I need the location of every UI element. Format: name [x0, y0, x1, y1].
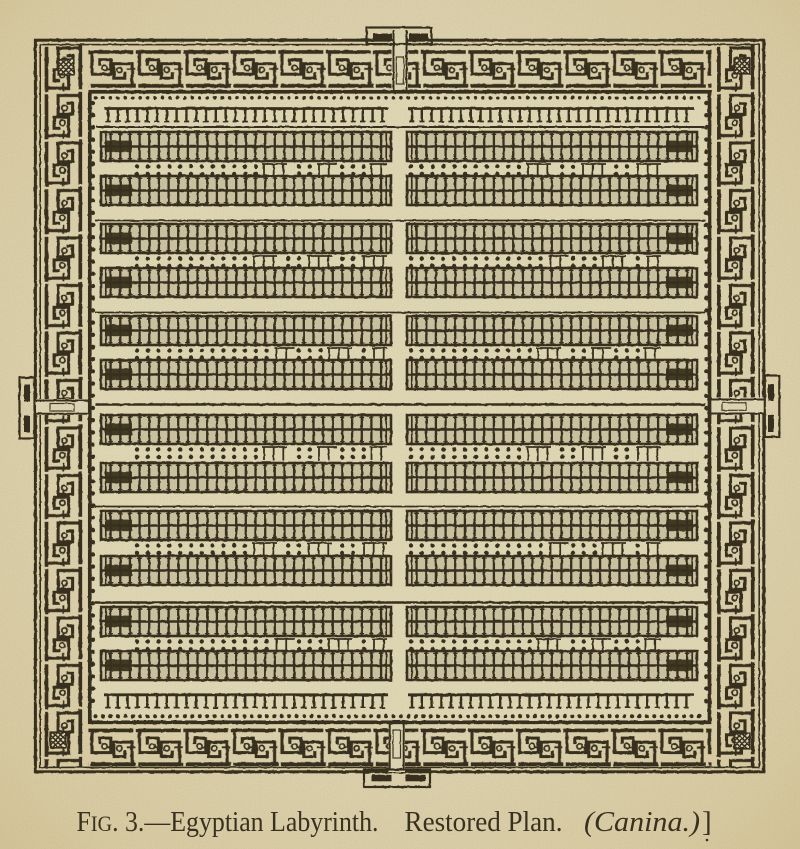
svg-text:(Canina.): (Canina.)	[584, 806, 700, 838]
svg-text:]: ]	[702, 806, 712, 838]
svg-text:Restored Plan.: Restored Plan.	[405, 806, 563, 838]
svg-text:FIG. 3.—Egyptian Labyrinth.: FIG. 3.—Egyptian Labyrinth.	[77, 806, 379, 838]
